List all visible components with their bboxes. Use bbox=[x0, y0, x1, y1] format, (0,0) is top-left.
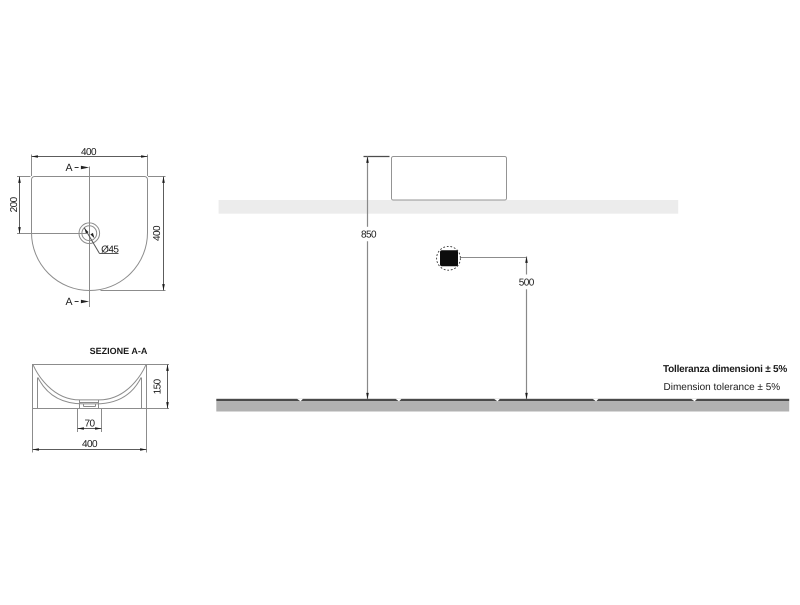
svg-text:200: 200 bbox=[9, 196, 20, 212]
svg-text:850: 850 bbox=[361, 230, 377, 241]
svg-text:A: A bbox=[65, 162, 72, 174]
svg-text:70: 70 bbox=[84, 419, 95, 430]
svg-text:A: A bbox=[65, 296, 72, 308]
svg-text:SEZIONE A-A: SEZIONE A-A bbox=[90, 346, 148, 356]
svg-text:400: 400 bbox=[81, 147, 97, 158]
svg-text:Ø45: Ø45 bbox=[101, 244, 119, 255]
svg-text:400: 400 bbox=[82, 439, 98, 450]
svg-text:500: 500 bbox=[519, 278, 535, 289]
svg-text:Tolleranza dimensioni ± 5%: Tolleranza dimensioni ± 5% bbox=[663, 364, 787, 375]
svg-text:400: 400 bbox=[152, 225, 163, 241]
svg-text:Dimension tolerance ± 5%: Dimension tolerance ± 5% bbox=[664, 382, 781, 393]
svg-text:150: 150 bbox=[152, 378, 163, 394]
